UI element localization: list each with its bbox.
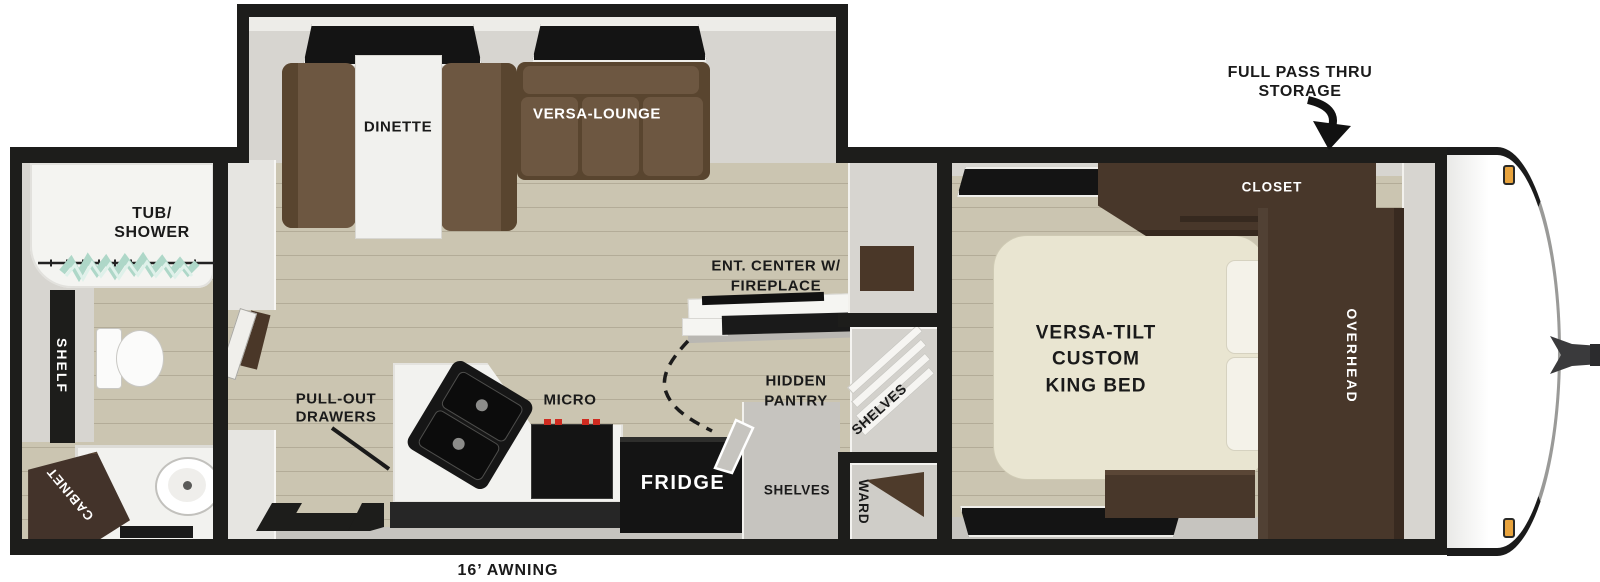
marker-light-top [1503, 165, 1515, 185]
toilet-bowl [116, 330, 164, 387]
wall-shelves-top [838, 313, 937, 327]
label-versa-lounge: VERSA-LOUNGE [533, 107, 661, 122]
bedfoot-niche [848, 160, 939, 315]
label-pass-thru-line2: STORAGE [1258, 84, 1341, 100]
lounge-backrest [523, 66, 699, 94]
label-pantry-line2: PANTRY [764, 394, 828, 409]
label-dinette: DINETTE [364, 120, 432, 135]
wall-left [10, 147, 22, 555]
dinette-bench-right-back [501, 63, 517, 231]
front-cap [1447, 147, 1561, 556]
micro-range [531, 424, 613, 499]
label-pull-out-line2: DRAWERS [296, 410, 377, 425]
label-fridge: FRIDGE [641, 473, 726, 493]
burner-knob-1 [544, 419, 551, 425]
slideout-wall-top [237, 4, 848, 17]
label-pull-out-line1: PULL-OUT [296, 392, 377, 407]
label-shelf: SHELF [55, 338, 69, 394]
sink-drain [183, 481, 192, 490]
pass-thru-arrow-curve [1308, 100, 1333, 127]
wall-ward-left [838, 452, 850, 539]
dinette-bench-left-back [282, 63, 298, 228]
overhead-cabinet [1258, 208, 1404, 540]
label-overhead: OVERHEAD [1345, 308, 1359, 403]
label-shelves-pantry: SHELVES [764, 483, 830, 497]
label-ent-center-line1: ENT. CENTER W/ [711, 259, 840, 274]
niche-panel [860, 246, 914, 291]
pass-thru-arrowhead [1313, 121, 1351, 150]
label-tub-line2: SHOWER [114, 225, 190, 241]
label-closet: CLOSET [1242, 180, 1303, 194]
wall-bedroom-divider [937, 160, 952, 539]
slideout-wall-right [836, 4, 848, 163]
label-ward: WARD [856, 479, 870, 524]
label-awning: 16’ AWNING [458, 563, 559, 579]
label-tub-line1: TUB/ [132, 206, 172, 222]
bath-mat [120, 526, 193, 538]
wall-bath-divider [213, 147, 228, 555]
dinette-table [355, 55, 442, 239]
bedroom-front-wall-face [1402, 160, 1439, 540]
label-bed-line1: VERSA-TILT [1036, 324, 1156, 343]
slideout-window-right [532, 24, 707, 62]
bath-wall-upper [228, 160, 276, 310]
slideout-wall-left [237, 4, 249, 163]
label-micro: MICRO [544, 393, 597, 408]
pantry-corridor [742, 402, 840, 540]
bedroom-nightstand [1105, 470, 1255, 518]
burner-knob-3 [582, 419, 589, 425]
label-ent-center-line2: FIREPLACE [731, 279, 821, 294]
wall-top-right [836, 147, 1447, 163]
kitchen-base [390, 502, 627, 528]
burner-knob-2 [555, 419, 562, 425]
wall-shelves-bottom [838, 452, 937, 463]
label-bed-line3: KING BED [1046, 377, 1147, 396]
marker-light-bottom [1503, 518, 1515, 538]
hitch-tip [1590, 344, 1600, 366]
bath-wall-lower [228, 430, 276, 540]
floorplan-canvas: FULL PASS THRU STORAGE 16’ AWNING TUB/ S… [0, 0, 1600, 582]
wall-top-left [10, 147, 238, 163]
label-pass-thru-line1: FULL PASS THRU [1228, 65, 1373, 81]
label-bed-line2: CUSTOM [1052, 350, 1140, 369]
label-pantry-line1: HIDDEN [765, 374, 826, 389]
burner-knob-4 [593, 419, 600, 425]
